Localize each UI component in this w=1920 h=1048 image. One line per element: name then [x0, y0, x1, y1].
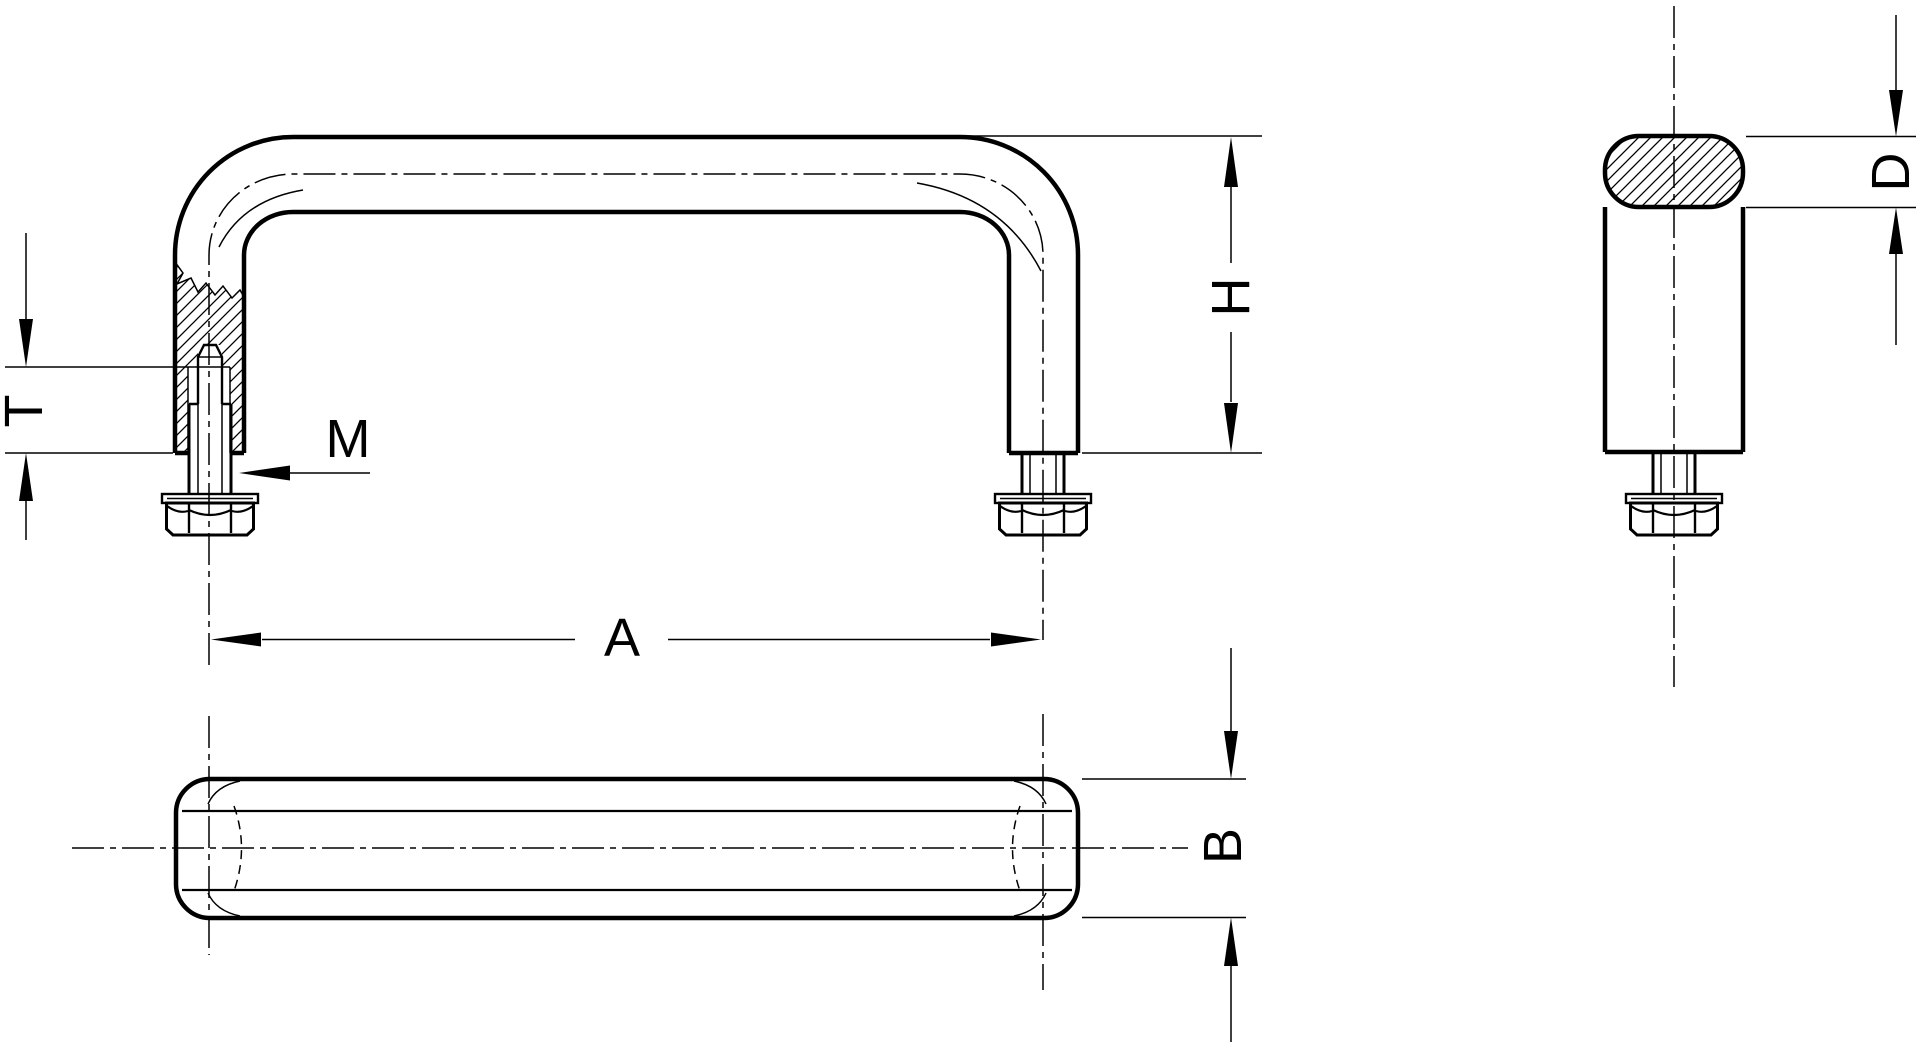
label-b: B: [1193, 828, 1253, 864]
label-d: D: [1861, 153, 1920, 192]
bottom-view-inner-lines: [182, 811, 1072, 890]
label-h: H: [1201, 278, 1261, 317]
arrowhead-d-bottom: [1889, 208, 1903, 255]
technical-drawing-canvas: A H T M: [0, 0, 1920, 1048]
arrowhead-b-bottom: [1224, 918, 1238, 967]
dimension-h: H: [945, 136, 1262, 453]
bend-tangent-arc-left: [219, 190, 303, 247]
technical-drawing-page: A H T M: [0, 0, 1920, 1048]
thread-callout-m: M: [239, 409, 370, 481]
arrowhead-m: [239, 466, 290, 481]
dimension-d: D: [1746, 15, 1920, 345]
bottom-view: [72, 714, 1188, 990]
arrowhead-h-top: [1224, 137, 1238, 187]
arrowhead-d-top: [1889, 90, 1903, 137]
bend-tangent-arc-right: [917, 183, 1041, 271]
arrowhead-t-bottom: [19, 453, 33, 501]
dimension-a: A: [211, 608, 1041, 668]
label-a: A: [604, 608, 640, 668]
arrowhead-h-bottom: [1224, 403, 1238, 453]
dimension-b: B: [1082, 648, 1253, 1042]
stud-left-shank: [189, 404, 231, 494]
arrowhead-b-top: [1224, 731, 1238, 779]
nut-left: [167, 503, 254, 535]
arrowhead-t-top: [19, 319, 33, 367]
label-m: M: [326, 409, 371, 469]
side-view: [1605, 6, 1743, 687]
stud-left-thread-lines: [198, 404, 222, 494]
stud-left-tip: [198, 345, 222, 404]
label-t: T: [0, 395, 54, 428]
handle-outer-contour: [175, 137, 1078, 453]
front-view: [162, 137, 1091, 665]
arrowhead-a-left: [211, 633, 261, 647]
arrowhead-a-right: [991, 633, 1041, 647]
